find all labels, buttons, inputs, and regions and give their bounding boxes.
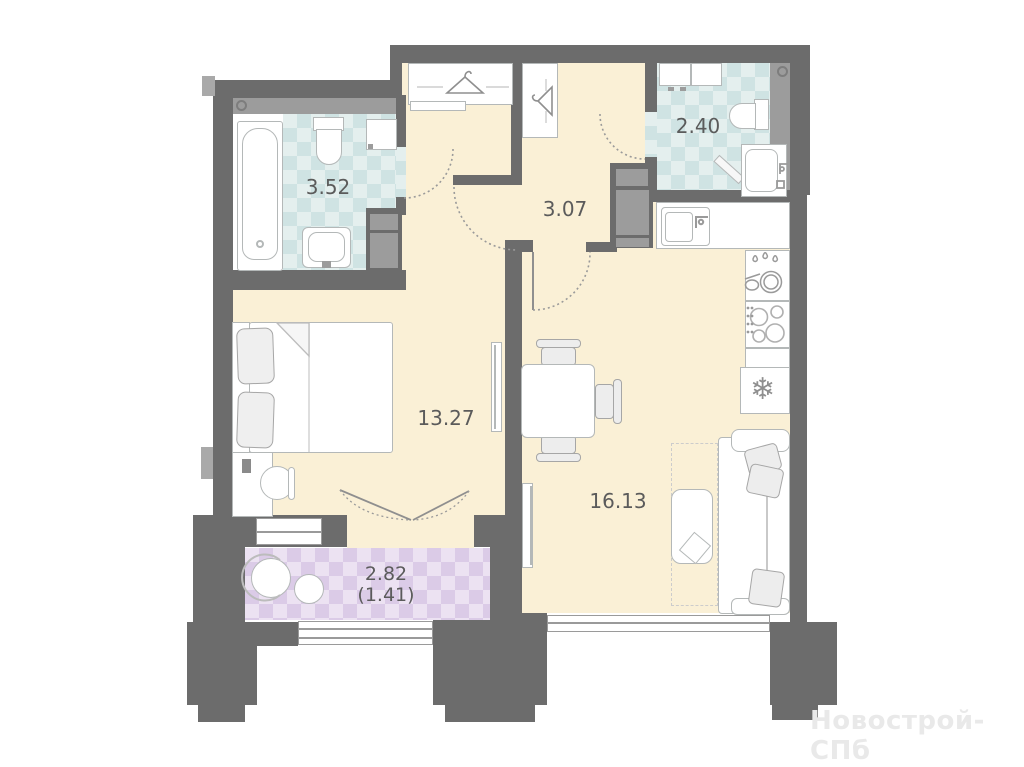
pier [187, 628, 257, 705]
kitchen-sink-basin [665, 212, 693, 242]
cabinet-handle [668, 87, 674, 91]
kitchen-counter-2 [745, 348, 790, 368]
pipe-riser-icon [236, 100, 247, 111]
bedroom-area-label: 13.27 [417, 406, 474, 430]
dining-table [521, 364, 595, 438]
fridge-snowflake-icon: ❄ [750, 375, 775, 405]
wall-segment [213, 80, 233, 520]
dining-chair-seat [595, 384, 614, 419]
hall-closet-shelf [616, 238, 649, 247]
wall-segment [396, 95, 406, 147]
cabinet-divider [690, 64, 692, 85]
balcony-chair [294, 574, 324, 604]
tv-screen-line [494, 345, 496, 429]
bathroom-closet-shelf [370, 214, 398, 230]
window-line [257, 531, 321, 533]
wall-segment [392, 45, 810, 63]
stove [745, 301, 790, 348]
balcony-door-threshold [347, 515, 474, 548]
wall-segment [645, 63, 657, 112]
washing-machine-knob [368, 144, 373, 149]
wall-segment [505, 240, 522, 520]
pier [445, 705, 535, 722]
window-line [299, 637, 432, 639]
living-room-window [547, 615, 770, 632]
toilet2-bowl [729, 103, 756, 129]
toilet-area-label: 2.40 [676, 114, 721, 138]
bed-pillow [236, 327, 275, 384]
hall-closet-shelf [616, 190, 649, 235]
balcony-glazing [298, 621, 433, 645]
living-kitchen-area-label: 16.13 [589, 489, 646, 513]
toilet-door-tile [645, 112, 657, 158]
bathroom-sink-faucet [322, 261, 331, 268]
sofa-pillow [748, 568, 786, 608]
wall-segment [790, 195, 807, 622]
balcony-area-label: 2.82 (1.41) [357, 564, 414, 606]
wall-segment [490, 547, 522, 622]
tv-screen-line [530, 486, 532, 565]
toilet2-tank [754, 99, 769, 130]
toilet-bowl [316, 129, 342, 165]
hallway-area-label: 3.07 [543, 197, 588, 221]
bathroom-sink-basin [308, 232, 345, 262]
balcony-table [251, 558, 291, 598]
dining-chair-back [536, 453, 581, 462]
bathroom-door-tile [396, 147, 406, 197]
wardrobe-2 [522, 63, 558, 138]
watermark: Новострой-СПб [810, 706, 1024, 766]
hall-closet-shelf [616, 169, 648, 186]
tv-bedroom [491, 342, 502, 432]
bathtub-drain [256, 240, 264, 248]
window-line [548, 622, 769, 624]
balcony-area-reduced-value: (1.41) [357, 585, 414, 606]
duct-strip-bathroom [233, 98, 398, 114]
wall-segment [790, 45, 810, 195]
balcony-area-value: 2.82 [357, 564, 414, 585]
cabinet-handle [680, 87, 686, 91]
dining-chair-back [613, 379, 622, 424]
pipe-riser-icon [777, 66, 788, 77]
wall-segment [474, 515, 522, 547]
wall-segment [505, 240, 533, 252]
wall-segment [213, 270, 406, 290]
bathroom-closet-shelf [370, 233, 398, 268]
window-line [299, 628, 432, 630]
pier [433, 620, 547, 705]
bed-pillow [236, 391, 275, 448]
bathroom-area-label: 3.52 [306, 175, 351, 199]
desk-chair-back [288, 467, 295, 500]
shower-tray [745, 149, 778, 192]
desk-monitor [242, 459, 251, 473]
wall-segment [213, 80, 402, 98]
facade-nub [202, 76, 215, 96]
pier [770, 622, 837, 705]
wall-segment [453, 175, 522, 185]
dishwasher [745, 250, 790, 301]
floor-plan: ❄ [0, 0, 1024, 767]
pier [198, 705, 245, 722]
wardrobe-shelf [410, 101, 466, 111]
wardrobe [408, 63, 513, 105]
facade-nub [201, 447, 213, 479]
